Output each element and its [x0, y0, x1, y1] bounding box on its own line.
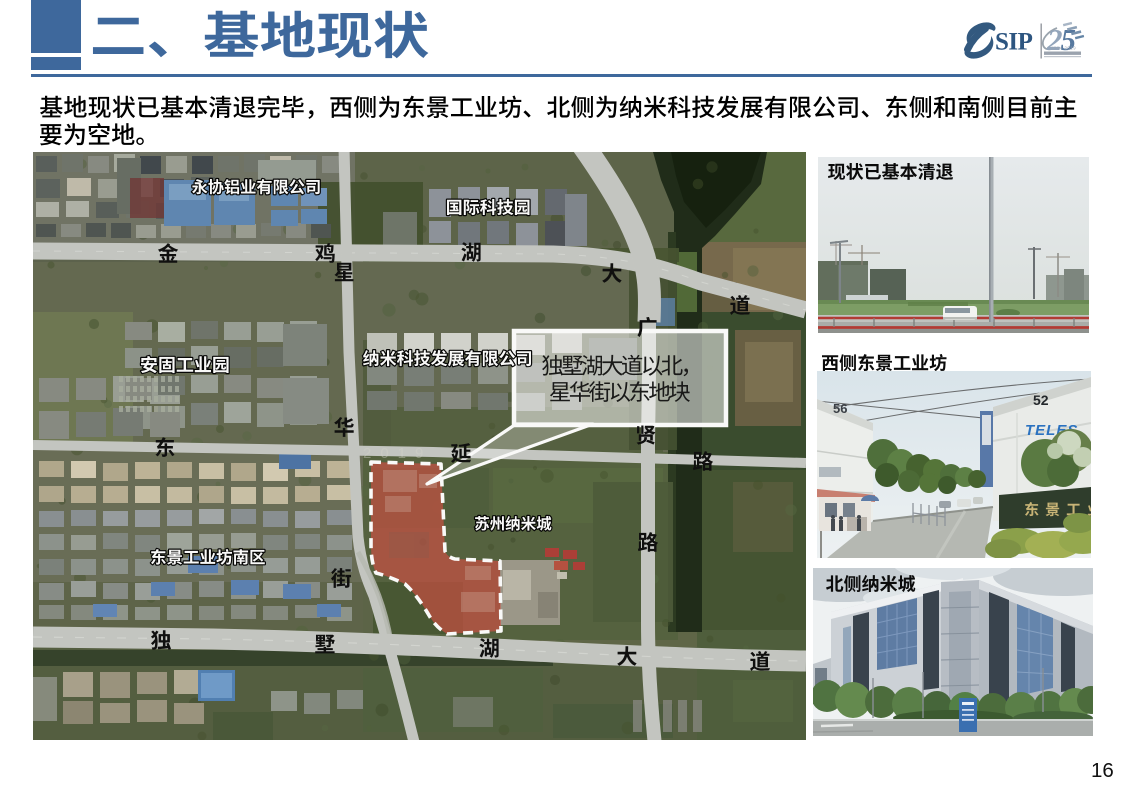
svg-text:56: 56: [833, 401, 847, 416]
svg-text:52: 52: [1033, 392, 1049, 408]
